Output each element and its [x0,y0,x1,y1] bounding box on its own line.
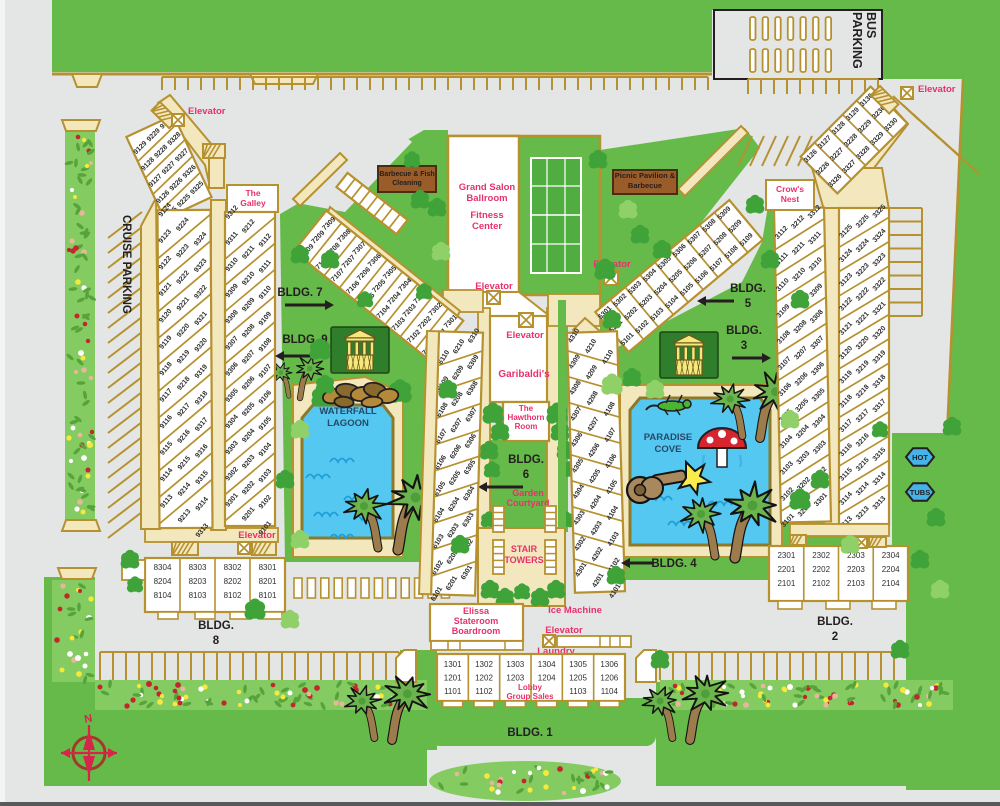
svg-text:1305: 1305 [569,660,587,669]
svg-text:BLDG.: BLDG. [198,620,234,632]
svg-text:1103: 1103 [569,687,587,696]
svg-text:Courtyard: Courtyard [506,498,549,508]
svg-text:PARADISE: PARADISE [644,432,692,443]
svg-text:Stateroom: Stateroom [454,616,499,626]
svg-text:Cleaning: Cleaning [392,180,422,187]
svg-text:2203: 2203 [847,565,865,574]
svg-text:2104: 2104 [882,579,900,588]
svg-text:Ballroom: Ballroom [466,193,507,204]
svg-text:1302: 1302 [475,660,493,669]
svg-text:8302: 8302 [224,563,242,572]
svg-text:2201: 2201 [777,565,795,574]
svg-text:8102: 8102 [224,591,242,600]
svg-text:Lobby: Lobby [518,683,543,692]
svg-text:8301: 8301 [259,563,277,572]
svg-text:1202: 1202 [475,673,493,682]
svg-text:8303: 8303 [189,563,207,572]
svg-text:1306: 1306 [600,660,618,669]
svg-text:Garden: Garden [512,488,544,498]
svg-text:HOT: HOT [912,453,928,462]
svg-text:1102: 1102 [475,687,493,696]
svg-text:2204: 2204 [882,565,900,574]
svg-text:1201: 1201 [444,673,462,682]
svg-text:The: The [245,188,260,198]
svg-text:Boardroom: Boardroom [452,626,501,636]
svg-text:8104: 8104 [154,591,172,600]
svg-text:8203: 8203 [189,577,207,586]
svg-text:Room: Room [515,422,538,431]
svg-text:STAIR: STAIR [511,544,538,554]
svg-text:Picnic Pavilion &: Picnic Pavilion & [615,171,676,180]
svg-text:2202: 2202 [812,565,830,574]
svg-text:8204: 8204 [154,577,172,586]
svg-text:LAGOON: LAGOON [327,418,369,429]
svg-text:1101: 1101 [444,687,462,696]
svg-text:The: The [519,404,534,413]
svg-text:8103: 8103 [189,591,207,600]
svg-text:TOWERS: TOWERS [504,555,543,565]
svg-text:Barbecue & Fish: Barbecue & Fish [379,171,434,178]
svg-text:Hawthorn: Hawthorn [508,413,545,422]
svg-text:Elevator: Elevator [506,330,544,341]
svg-text:Group Sales: Group Sales [506,692,554,701]
svg-text:8101: 8101 [259,591,277,600]
svg-text:TUBS: TUBS [910,488,930,497]
svg-text:3: 3 [741,340,747,352]
svg-text:1206: 1206 [600,673,618,682]
svg-text:Crow's: Crow's [776,184,804,194]
svg-text:CRUISE PARKING: CRUISE PARKING [120,215,132,314]
svg-text:Elevator: Elevator [188,106,226,117]
svg-text:1104: 1104 [601,687,619,696]
svg-text:8304: 8304 [154,563,172,572]
svg-text:6: 6 [523,469,529,481]
svg-text:Garibaldi's: Garibaldi's [498,369,550,380]
svg-text:Grand Salon: Grand Salon [459,182,516,193]
svg-text:Barbecue: Barbecue [628,181,662,190]
svg-text:2101: 2101 [777,579,795,588]
svg-text:Fitness: Fitness [470,210,503,221]
svg-text:BLDG.: BLDG. [817,616,853,628]
svg-text:BLDG. 1: BLDG. 1 [507,727,553,739]
svg-text:2103: 2103 [847,579,865,588]
svg-text:1205: 1205 [569,673,587,682]
svg-text:2: 2 [832,631,838,643]
svg-text:BLDG. 4: BLDG. 4 [651,558,697,570]
svg-text:Center: Center [472,221,502,232]
svg-text:BUS: BUS [864,12,878,38]
svg-text:2301: 2301 [777,551,795,560]
svg-text:8201: 8201 [259,577,277,586]
svg-text:COVE: COVE [655,444,682,455]
svg-text:2302: 2302 [812,551,830,560]
svg-text:Nest: Nest [781,194,800,204]
svg-text:8202: 8202 [224,577,242,586]
svg-text:1204: 1204 [538,673,556,682]
svg-text:PARKING: PARKING [850,12,864,69]
svg-text:Galley: Galley [240,198,266,208]
svg-text:5: 5 [745,298,752,310]
svg-text:1303: 1303 [506,660,524,669]
svg-text:2102: 2102 [812,579,830,588]
svg-text:BLDG. 7: BLDG. 7 [277,287,322,299]
svg-text:BLDG.: BLDG. [508,454,544,466]
svg-text:Ice Machine: Ice Machine [548,605,602,616]
svg-text:BLDG.: BLDG. [730,283,766,295]
svg-text:2304: 2304 [882,551,900,560]
svg-text:BLDG.: BLDG. [726,325,762,337]
svg-text:Elissa: Elissa [463,606,490,616]
svg-text:1304: 1304 [538,660,556,669]
svg-text:1203: 1203 [506,673,524,682]
svg-text:Elevator: Elevator [918,84,956,95]
svg-text:1301: 1301 [444,660,462,669]
svg-text:8: 8 [213,635,220,647]
